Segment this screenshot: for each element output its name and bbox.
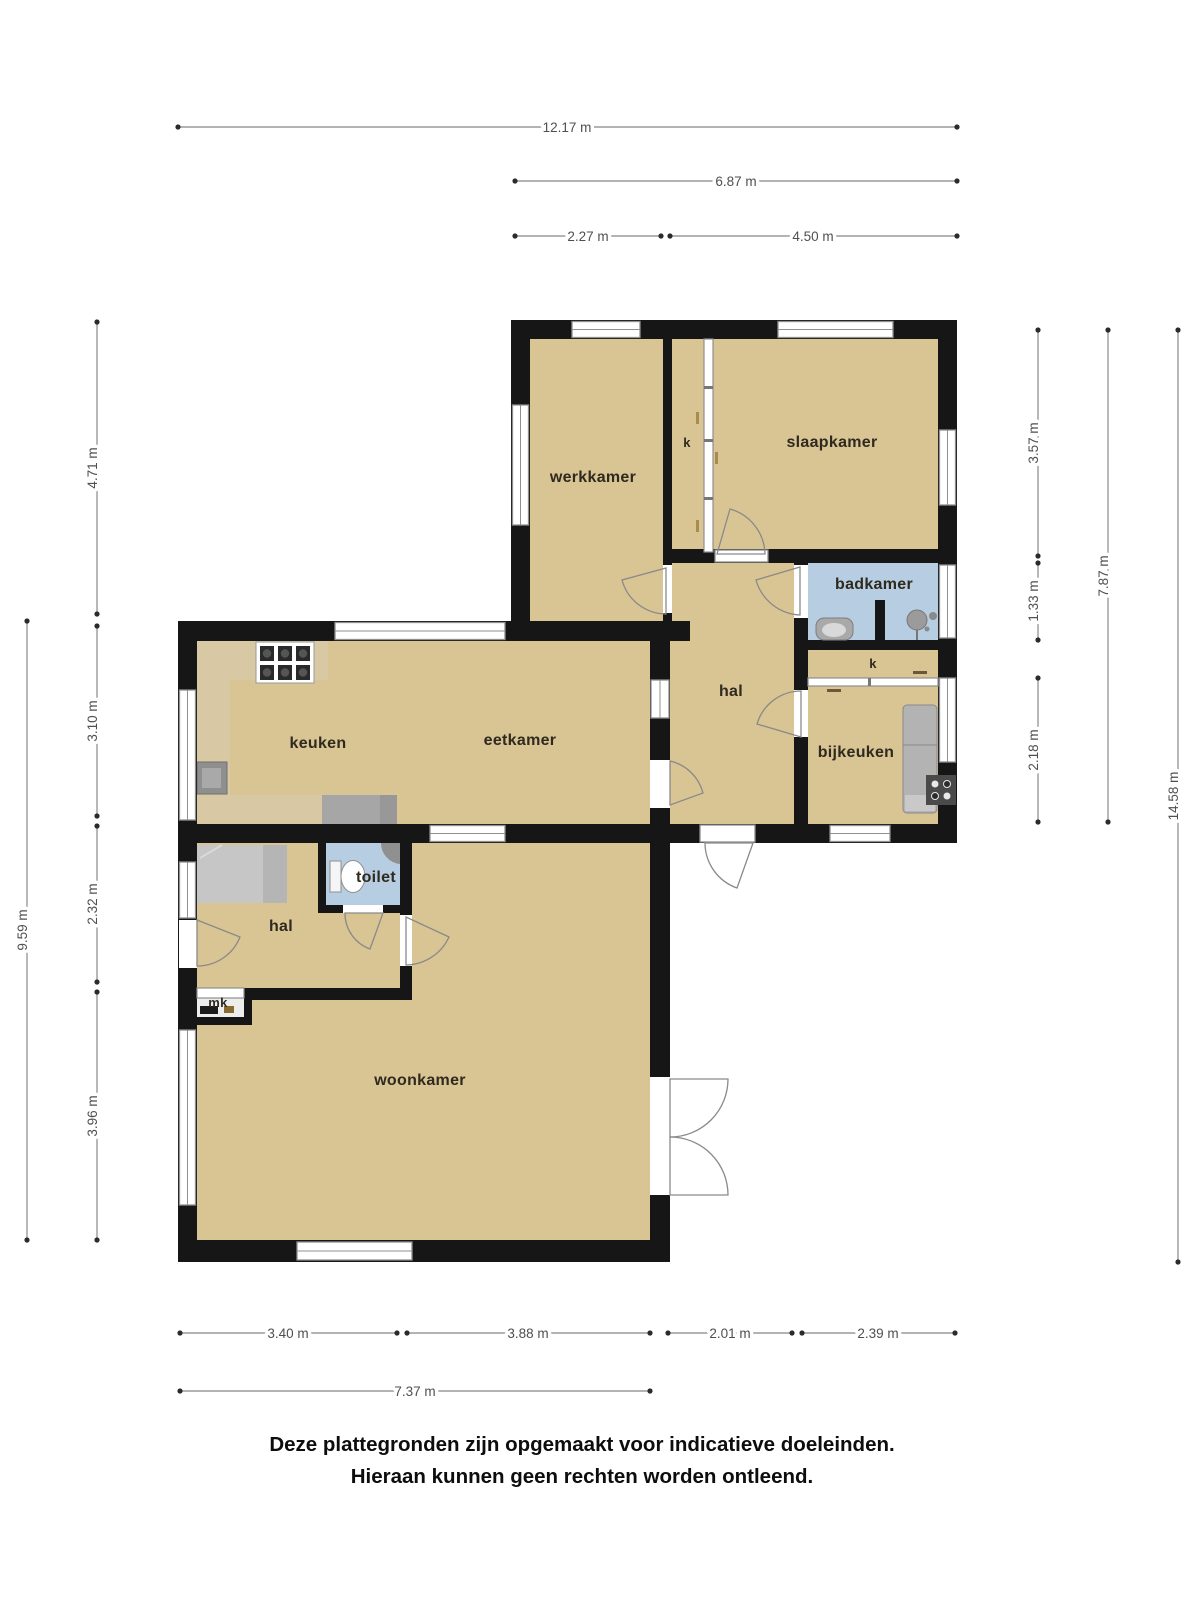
window-slaapkamer-right <box>940 430 956 505</box>
dimension-left-woonkamer: 3.96 m <box>85 989 100 1242</box>
disclaimer-line-2: Hieraan kunnen geen rechten worden ontle… <box>351 1465 813 1488</box>
disclaimer-line-1: Deze plattegronden zijn opgemaakt voor i… <box>269 1433 894 1456</box>
label-eetkamer: eetkamer <box>484 732 557 749</box>
window-woonkamer-bottom <box>297 1242 412 1260</box>
window-badkamer-right <box>940 565 956 638</box>
window-keuken-left <box>180 690 196 820</box>
dimension-right-upper-block: 7.87 m <box>1096 327 1111 824</box>
label-werkkamer: werkkamer <box>549 469 636 486</box>
floor-plan-page: werkkamer k slaapkamer badkamer hal k bi… <box>0 0 1200 1600</box>
badkamer-sink-icon <box>816 618 853 640</box>
dim-2-18: 2.18 m <box>1026 729 1041 770</box>
dim-4-71: 4.71 m <box>85 447 100 488</box>
dim-2-32: 2.32 m <box>85 883 100 924</box>
dim-7-87: 7.87 m <box>1096 555 1111 596</box>
label-hal-beneden: hal <box>269 918 293 935</box>
dimension-left-keuken: 3.10 m <box>85 623 100 818</box>
dim-2-27: 2.27 m <box>567 229 608 244</box>
dimension-bottom-woonkamer-left: 3.40 m <box>177 1326 399 1341</box>
dim-4-50: 4.50 m <box>792 229 833 244</box>
dimension-bottom-bijkeuken: 2.39 m <box>799 1326 957 1341</box>
dim-3-57: 3.57 m <box>1026 422 1041 463</box>
hall-doormat <box>197 845 287 903</box>
dimension-bottom-woonkamer-right: 3.88 m <box>404 1326 652 1341</box>
dim-3-10: 3.10 m <box>85 700 100 741</box>
opening-front-door <box>179 920 197 968</box>
window-slaapkamer-top <box>778 322 893 338</box>
dim-6-87: 6.87 m <box>715 174 756 189</box>
dimension-top-upper-block: 6.87 m <box>512 174 959 189</box>
opening-slaapkamer <box>715 550 768 562</box>
window-bijkeuken-bottom <box>830 826 890 842</box>
dimension-right-slaapkamer: 3.57 m <box>1026 327 1041 558</box>
window-hal-sidelight-left <box>180 862 196 918</box>
label-kast-bijkeuken: k <box>869 656 877 671</box>
opening-badkamer <box>794 565 808 618</box>
label-kast-boven: k <box>683 435 691 450</box>
dim-3-88: 3.88 m <box>507 1326 548 1341</box>
opening-back-door <box>700 825 755 842</box>
door-arc-french-bottom <box>670 1137 728 1195</box>
window-werkkamer-top <box>572 322 640 338</box>
window-bijkeuken-right <box>940 678 956 762</box>
dimension-top-total: 12.17 m <box>175 120 959 135</box>
dimension-right-badkamer: 1.33 m <box>1026 560 1041 642</box>
label-bijkeuken: bijkeuken <box>818 744 895 761</box>
dimension-right-bijkeuken: 2.18 m <box>1026 675 1041 824</box>
window-woonkamer-left <box>180 1030 196 1205</box>
dimension-left-hal: 2.32 m <box>85 823 100 984</box>
kitchen-sink <box>197 762 227 794</box>
dim-2-01: 2.01 m <box>709 1326 750 1341</box>
window-ensuite-eetkamer <box>430 826 505 842</box>
opening-french-doors <box>650 1077 670 1195</box>
dim-12-17: 12.17 m <box>543 120 592 135</box>
dim-7-37: 7.37 m <box>394 1384 435 1399</box>
door-arc-back-door <box>705 843 753 888</box>
lower-block-floor <box>197 641 650 1240</box>
dimension-top-werkkamer: 2.27 m <box>512 229 663 244</box>
opening-werkkamer <box>663 565 672 613</box>
opening-toilet <box>343 905 383 913</box>
stove-icon <box>256 642 314 683</box>
label-slaapkamer: slaapkamer <box>786 434 877 451</box>
opening-eetkamer <box>650 760 670 808</box>
dim-3-40: 3.40 m <box>267 1326 308 1341</box>
dimension-right-total: 14.58 m <box>1166 327 1181 1264</box>
dimension-bottom-total: 7.37 m <box>177 1384 652 1399</box>
dimension-top-slaapkamer: 4.50 m <box>667 229 959 244</box>
dim-1-33: 1.33 m <box>1026 580 1041 621</box>
window-werkkamer-left <box>513 405 529 525</box>
disclaimer: Deze plattegronden zijn opgemaakt voor i… <box>269 1433 894 1488</box>
label-badkamer: badkamer <box>835 576 913 593</box>
dimension-left-total: 9.59 m <box>15 618 30 1242</box>
dimension-left-keuken-block: 4.71 m <box>85 319 100 616</box>
dim-14-58: 14.58 m <box>1166 772 1181 821</box>
label-keuken: keuken <box>290 735 347 752</box>
label-hal-boven: hal <box>719 683 743 700</box>
label-toilet: toilet <box>356 869 396 886</box>
label-meterkast: mk <box>208 995 228 1010</box>
dimension-bottom-hal: 2.01 m <box>665 1326 794 1341</box>
label-woonkamer: woonkamer <box>373 1072 466 1089</box>
boiler-icon <box>926 775 956 805</box>
dim-9-59: 9.59 m <box>15 909 30 950</box>
window-keuken-top <box>335 623 505 640</box>
window-eetkamer-hal-interior <box>651 680 669 718</box>
door-arc-french-top <box>670 1079 728 1137</box>
dim-2-39: 2.39 m <box>857 1326 898 1341</box>
floor-plan-canvas: werkkamer k slaapkamer badkamer hal k bi… <box>0 0 1200 1600</box>
dim-3-96: 3.96 m <box>85 1095 100 1136</box>
